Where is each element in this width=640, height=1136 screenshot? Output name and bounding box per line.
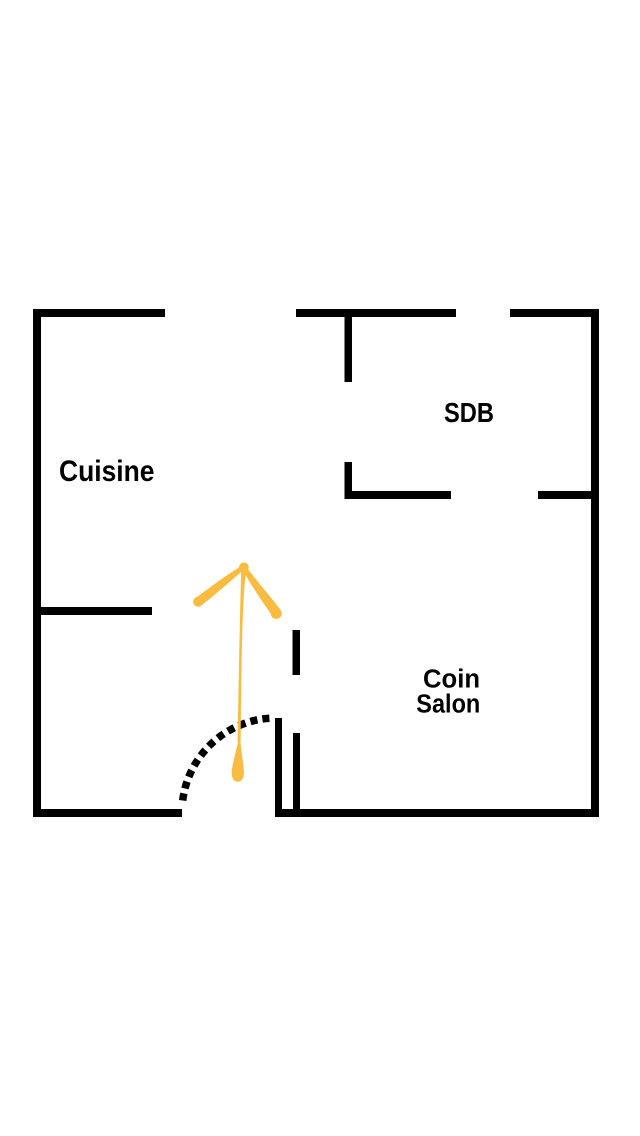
svg-text:SDB: SDB bbox=[444, 397, 494, 428]
svg-text:Cuisine: Cuisine bbox=[59, 455, 155, 488]
svg-text:Coin: Coin bbox=[423, 665, 480, 693]
svg-text:Salon: Salon bbox=[416, 690, 480, 718]
